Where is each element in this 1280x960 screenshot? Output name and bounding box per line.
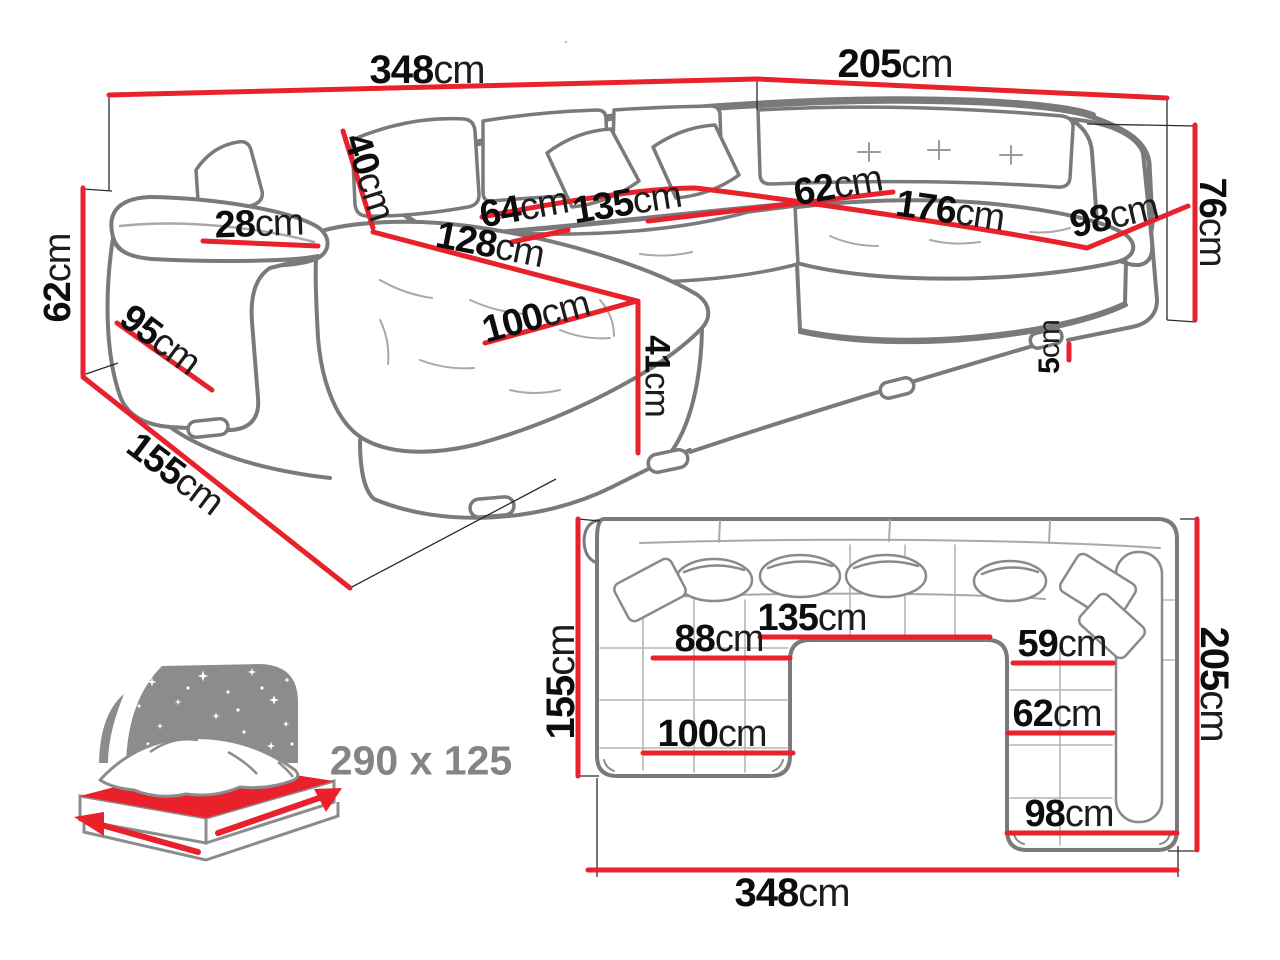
dim-label-armrest-width: 28cm [214, 203, 304, 244]
dim-label-backrest-height: 76cm [1193, 178, 1231, 267]
sofa-dimension-diagram: 348cm 205cm 40cm 28cm 64cm 135cm 128cm 6… [0, 0, 1280, 960]
dim-label-armrest-height: 62cm [39, 234, 77, 323]
sofa-perspective-line-art [108, 42, 1157, 518]
dim-label-leg-height: 5cm [1035, 320, 1065, 374]
sleeping-area-size-label: 290 x 125 [330, 738, 512, 785]
dim-label-top-right-inner: 62cm [1013, 695, 1102, 733]
dim-label-top-right-depth: 205cm [1194, 626, 1234, 741]
dim-label-back-width: 348cm [369, 50, 484, 90]
dim-label-top-left-depth: 155cm [541, 624, 581, 739]
dim-label-top-total-width: 348cm [734, 873, 849, 913]
dim-label-top-chaise-seat: 88cm [675, 620, 764, 658]
dim-label-right-side-depth: 205cm [837, 44, 952, 84]
sleeping-bed-icon [74, 664, 342, 860]
dim-label-top-middle-seat: 135cm [757, 599, 866, 637]
dim-label-top-right-seat: 59cm [1018, 625, 1107, 663]
dim-label-top-right-foot: 98cm [1025, 795, 1114, 833]
dim-line-205-back [757, 79, 1167, 98]
dim-label-top-chaise-foot: 100cm [657, 715, 766, 753]
dim-label-seat-height: 41cm [640, 335, 675, 417]
